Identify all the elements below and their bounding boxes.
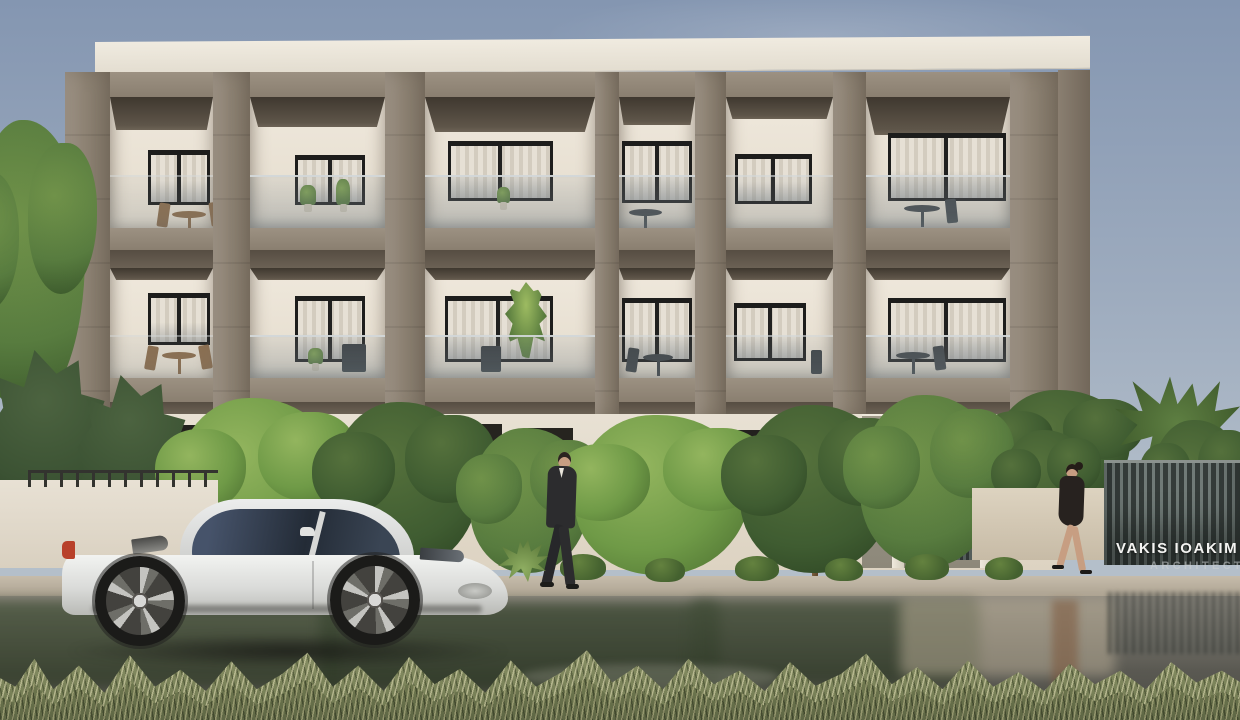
balcony-bay (425, 268, 595, 378)
car-mirror (300, 527, 315, 536)
window-bay (726, 268, 833, 378)
balcony-bay (619, 97, 695, 228)
frame-column (833, 72, 866, 414)
shrub (905, 554, 949, 580)
balcony-ceiling-shadow (250, 268, 385, 280)
glass-railing (619, 175, 695, 228)
balcony-ceiling-shadow (726, 97, 833, 119)
woman-leg (1071, 526, 1087, 572)
shrub (645, 558, 685, 582)
balcony-ceiling-shadow (726, 268, 833, 280)
shrub (825, 558, 863, 581)
wall-reflection (900, 598, 1115, 676)
balcony-bay (250, 268, 385, 378)
balcony-bay (866, 268, 1010, 378)
balcony-ceiling-shadow (250, 97, 385, 127)
watermark-studio-name: VAKIS IOAKIM (1116, 540, 1240, 557)
balcony-ceiling-shadow (866, 268, 1010, 280)
glass-railing (250, 175, 385, 228)
frame-column (213, 72, 250, 414)
car-windows (192, 509, 400, 559)
woman-hair-bun (1075, 462, 1083, 470)
balcony-bay (866, 97, 1010, 228)
window-bay (726, 97, 833, 228)
watermark-studio-subtitle: ARCHITECTS (1150, 560, 1240, 572)
sports-car (62, 497, 508, 655)
balcony-bay (619, 268, 695, 378)
glass-railing (250, 335, 385, 378)
balcony-ceiling-shadow (425, 268, 595, 280)
balcony-ceiling-shadow (110, 268, 213, 280)
frame-column (595, 72, 619, 414)
building-side-return (1058, 70, 1090, 414)
glass-railing (425, 335, 595, 378)
car-front-intake (458, 583, 492, 599)
glass-railing (619, 335, 695, 378)
man-shoe (540, 582, 554, 587)
balcony-ceiling-shadow (619, 268, 695, 280)
balcony-bay (110, 97, 213, 228)
woman-shoe (1080, 570, 1092, 574)
glass-railing (425, 175, 595, 228)
glass-railing (110, 175, 213, 228)
glass-railing (110, 335, 213, 378)
glass-railing (866, 335, 1010, 378)
balcony-bay (250, 97, 385, 228)
shrub (735, 556, 779, 581)
architectural-render-scene: VAKIS IOAKIM ARCHITECTS (0, 0, 1240, 720)
pedestrian-man (538, 450, 590, 592)
frame-column (695, 72, 726, 414)
car-door-seam (312, 561, 314, 609)
glass-railing (726, 175, 833, 228)
balcony-ceiling-shadow (866, 97, 1010, 135)
watermark: VAKIS IOAKIM ARCHITECTS (1116, 540, 1240, 572)
woman-dress (1058, 476, 1085, 527)
car-rear-wheel (95, 556, 185, 646)
car-front-wheel (330, 555, 420, 645)
glass-railing (866, 175, 1010, 228)
car-taillight (62, 541, 75, 559)
frame-column (385, 72, 425, 414)
pedestrian-woman (1044, 462, 1102, 580)
balcony-ceiling-shadow (110, 97, 213, 130)
frame-column (1010, 72, 1058, 414)
man-shoe (566, 584, 579, 589)
roof-parapet (95, 36, 1090, 75)
left-wall-railing (28, 470, 218, 487)
man-leg (558, 526, 575, 587)
balcony-bay (425, 97, 595, 228)
balcony-ceiling-shadow (425, 97, 595, 132)
woman-shoe (1052, 565, 1064, 569)
balcony-bay (110, 268, 213, 378)
shrub (985, 557, 1023, 580)
glass-railing (726, 335, 833, 378)
balcony-ceiling-shadow (619, 97, 695, 125)
car-side-vent (131, 535, 169, 555)
building-facade (65, 72, 1058, 414)
fence-reflection (1108, 592, 1240, 654)
